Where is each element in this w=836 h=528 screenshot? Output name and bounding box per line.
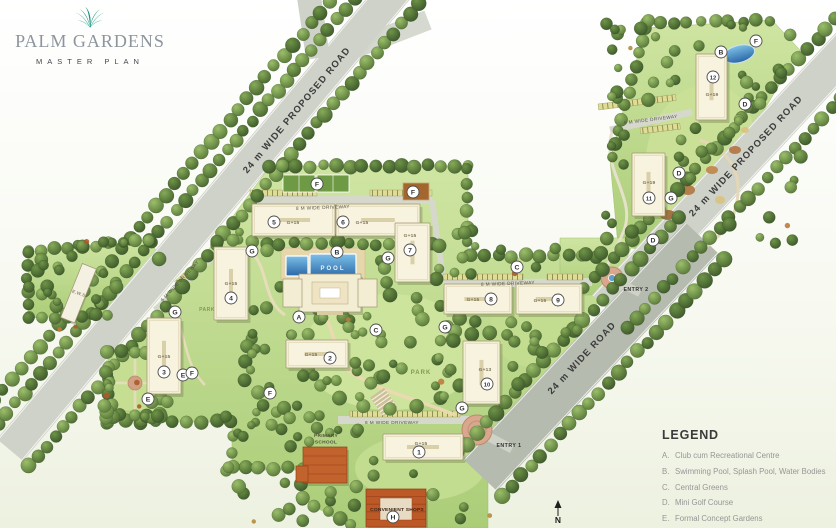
tree — [610, 25, 620, 35]
tree — [636, 34, 649, 47]
tree — [180, 416, 193, 429]
master-plan-page: G+151G+152G+153G+154G+155G+156G+157G+158… — [0, 0, 836, 528]
amenity-marker-d-text: D — [677, 170, 682, 177]
tree — [572, 325, 583, 336]
tree — [639, 303, 650, 314]
tree — [383, 288, 397, 302]
tree — [251, 386, 265, 400]
tree — [669, 45, 680, 56]
tree — [409, 469, 418, 478]
tree — [749, 13, 762, 26]
tree — [672, 210, 686, 224]
tree — [544, 439, 557, 452]
building-number-marker-text: 1 — [417, 449, 421, 456]
tree — [23, 247, 34, 258]
tree — [785, 181, 797, 193]
tree — [619, 159, 629, 169]
legend-item-label: Mini Golf Course — [675, 498, 733, 507]
building-10 — [463, 341, 503, 407]
building-floors-label: G+15 — [225, 281, 238, 287]
tree — [582, 398, 594, 410]
tree — [50, 431, 62, 443]
shrub — [346, 317, 351, 322]
tree — [166, 416, 178, 428]
tree — [300, 237, 313, 250]
building-11 — [632, 153, 668, 219]
tree — [187, 184, 199, 196]
logo-subtitle: MASTER PLAN — [10, 57, 170, 66]
tree — [23, 299, 34, 310]
tree — [435, 335, 446, 346]
tree — [519, 248, 533, 262]
amenity-marker-d-text: D — [651, 237, 656, 244]
tree — [238, 374, 252, 388]
tree — [723, 218, 737, 232]
splash-pool — [286, 256, 308, 276]
tree — [465, 327, 479, 341]
legend-item: B.Swimming Pool, Splash Pool, Water Bodi… — [662, 467, 836, 476]
tree — [320, 23, 334, 37]
amenity-marker-g-text: G — [385, 255, 390, 262]
tree — [396, 363, 408, 375]
tree — [765, 81, 777, 93]
building-number-marker-text: 9 — [556, 297, 560, 304]
tree — [211, 235, 224, 248]
tree — [36, 312, 47, 323]
tree — [410, 399, 424, 413]
tree — [25, 378, 37, 390]
tree — [140, 412, 149, 421]
mini-golf-patch — [741, 127, 749, 133]
tree — [508, 361, 519, 372]
tree — [297, 515, 309, 527]
tree — [33, 339, 48, 354]
tree — [59, 336, 73, 350]
tree — [41, 441, 53, 453]
club-wing — [283, 279, 302, 307]
tree — [435, 160, 447, 172]
tree — [496, 245, 506, 255]
legend-item-key: E. — [662, 514, 675, 523]
tree — [597, 294, 610, 307]
tree — [272, 238, 285, 251]
tree — [302, 328, 315, 341]
tree — [561, 327, 571, 337]
tree — [380, 276, 392, 288]
tree — [98, 237, 109, 248]
tree — [588, 304, 600, 316]
tree — [625, 74, 637, 86]
tree — [596, 263, 610, 277]
tree — [739, 24, 747, 32]
tree — [370, 240, 382, 252]
tree — [594, 246, 608, 260]
tree — [634, 22, 647, 35]
tree — [129, 234, 142, 247]
tree — [384, 403, 397, 416]
tree — [357, 239, 368, 250]
amenity-marker-e-text: E — [181, 372, 186, 379]
tree — [633, 47, 644, 58]
legend-item: A.Club cum Recreational Centre — [662, 451, 836, 460]
tree — [43, 288, 52, 297]
site-label: SCHOOL — [315, 440, 337, 446]
tree — [470, 426, 485, 441]
tree — [676, 259, 691, 274]
tree — [23, 281, 34, 292]
tree — [407, 160, 421, 174]
tree — [115, 344, 129, 358]
tree — [439, 392, 448, 401]
tree — [302, 127, 315, 140]
tree — [550, 243, 561, 254]
site-label: PARK — [411, 370, 432, 376]
tree — [383, 160, 396, 173]
mini-golf-patch — [715, 196, 725, 204]
shrub — [785, 223, 790, 228]
tree — [600, 232, 613, 245]
tree — [363, 312, 371, 320]
amenity-marker-b-text: B — [335, 249, 340, 256]
tree — [358, 328, 367, 337]
legend-item-key: B. — [662, 467, 675, 476]
tree — [89, 308, 102, 321]
tree — [601, 211, 610, 220]
amenity-marker-f-text: F — [754, 38, 758, 45]
tree — [368, 470, 380, 482]
shrub — [137, 404, 141, 408]
tree — [703, 231, 717, 245]
parking-strip — [547, 274, 583, 280]
tree — [151, 410, 164, 423]
tree — [105, 383, 114, 392]
tree — [513, 467, 528, 482]
tree — [563, 249, 576, 262]
tree — [304, 437, 314, 447]
tree — [343, 321, 355, 333]
building-12 — [696, 54, 730, 123]
tree — [304, 411, 316, 423]
legend-item: E.Formal Concept Gardens — [662, 514, 836, 523]
tree — [801, 42, 815, 56]
shrub — [487, 513, 492, 518]
tree — [533, 449, 547, 463]
tree — [624, 87, 636, 99]
tree — [754, 97, 766, 109]
tree — [690, 123, 701, 134]
amenity-marker-a-text: A — [297, 314, 302, 321]
tree — [415, 312, 429, 326]
tree — [110, 280, 124, 294]
tree — [203, 164, 218, 179]
tree — [227, 234, 240, 247]
tree — [465, 268, 476, 279]
tree — [531, 262, 541, 272]
legend-item-key: D. — [662, 498, 675, 507]
club-skylight — [320, 288, 340, 298]
tree — [483, 326, 497, 340]
logo: PALM GARDENS MASTER PLAN — [10, 4, 170, 66]
tree — [350, 480, 363, 493]
building-2 — [286, 340, 351, 371]
tree — [152, 252, 166, 266]
tree — [248, 329, 258, 339]
building-floors-label: G+15 — [467, 297, 480, 303]
tree — [297, 28, 310, 41]
shrub — [134, 380, 140, 386]
tree — [469, 315, 481, 327]
tree — [54, 265, 64, 275]
tree — [387, 28, 401, 42]
tree — [427, 488, 440, 501]
tree — [258, 70, 271, 83]
tree — [478, 249, 491, 262]
tree — [334, 426, 342, 434]
building-number-marker-text: 4 — [229, 295, 233, 302]
tree — [67, 251, 78, 262]
amenity-marker-c-text: C — [374, 327, 379, 334]
tree — [201, 249, 214, 262]
tree — [506, 480, 519, 493]
tree — [614, 64, 622, 72]
tree — [293, 432, 302, 441]
tree — [161, 216, 173, 228]
tree — [462, 192, 473, 203]
amenity-marker-g-text: G — [172, 309, 177, 316]
tree — [762, 172, 773, 183]
building-number-marker-text: 12 — [710, 75, 716, 81]
tree — [607, 152, 617, 162]
tree — [257, 399, 269, 411]
tree — [287, 330, 297, 340]
tree — [445, 364, 457, 376]
building-floors-label: G+15 — [305, 352, 318, 358]
tree — [709, 14, 722, 27]
shrub — [57, 327, 62, 332]
club-wing — [358, 279, 377, 307]
tree — [395, 158, 409, 172]
tree — [651, 32, 660, 41]
tree — [592, 388, 605, 401]
amenity-marker-h-text: H — [391, 514, 396, 521]
tree — [129, 257, 140, 268]
tree — [363, 360, 375, 372]
tree — [323, 506, 333, 516]
amenity-marker-g-text: G — [442, 324, 447, 331]
tree — [308, 500, 321, 513]
tree — [247, 349, 256, 358]
amenity-marker-c-text: C — [515, 264, 520, 271]
tree — [247, 421, 255, 429]
building-floors-label: G+19 — [706, 92, 719, 98]
tree — [39, 260, 49, 270]
tree — [633, 251, 649, 267]
tree — [339, 3, 353, 17]
tree — [238, 431, 249, 442]
tree — [15, 362, 28, 375]
entry-label: ENTRY 1 — [496, 443, 521, 449]
tree — [100, 345, 114, 359]
tree — [309, 371, 320, 382]
mini-golf-patch — [706, 166, 718, 174]
building-number-marker-text: 10 — [484, 382, 490, 388]
legend-item-label: Central Greens — [675, 483, 728, 492]
shrub — [73, 325, 77, 329]
tree — [49, 312, 61, 324]
tree — [787, 235, 798, 246]
tree — [607, 45, 617, 55]
logo-title: PALM GARDENS — [10, 31, 170, 52]
tree — [98, 399, 111, 412]
mini-golf-patch — [729, 146, 741, 154]
tree — [159, 188, 174, 203]
tree — [213, 154, 225, 166]
building-floors-label: G+13 — [479, 367, 492, 373]
tree — [292, 401, 302, 411]
site-label: PARK — [199, 307, 215, 313]
tree — [765, 16, 775, 26]
tree — [331, 375, 342, 386]
tree — [667, 274, 678, 285]
tree — [799, 132, 812, 145]
tree — [383, 238, 395, 250]
tree — [450, 268, 459, 277]
tree — [460, 204, 473, 217]
tree — [457, 252, 468, 263]
tree — [694, 40, 705, 51]
tree — [530, 337, 540, 347]
tree — [763, 211, 775, 223]
tree — [727, 20, 736, 29]
tree — [213, 124, 228, 139]
tree — [536, 346, 549, 359]
tree — [674, 152, 684, 162]
tree — [814, 112, 829, 127]
tree — [776, 67, 788, 79]
tree — [602, 377, 615, 390]
tree — [266, 419, 278, 431]
tree — [546, 343, 561, 358]
tree — [740, 76, 753, 89]
tree — [471, 242, 479, 250]
tree — [521, 321, 532, 332]
tree — [357, 399, 371, 413]
tree — [422, 159, 434, 171]
building-number-marker-text: 3 — [162, 369, 166, 376]
tree — [194, 416, 208, 430]
tree — [251, 189, 264, 202]
amenity-marker-f-text: F — [315, 181, 319, 188]
tree — [506, 317, 518, 329]
tree — [129, 410, 140, 421]
tree — [779, 151, 792, 164]
tree — [654, 16, 667, 29]
tree — [282, 461, 295, 474]
tree — [304, 161, 317, 174]
tree — [143, 235, 154, 246]
tree — [268, 59, 280, 71]
tree — [223, 462, 234, 473]
tree — [237, 125, 248, 136]
tree — [280, 478, 290, 488]
tree — [288, 159, 302, 173]
tree — [642, 337, 654, 349]
tree — [658, 315, 673, 330]
driveway-label: 8 M WIDE DRIVEWAY — [365, 420, 419, 425]
tree — [316, 238, 328, 250]
tree — [676, 135, 686, 145]
tree — [226, 448, 237, 459]
tree — [459, 502, 468, 511]
shrub — [438, 379, 444, 385]
compass-north-label: N — [555, 515, 561, 525]
tree — [411, 292, 422, 303]
tree — [355, 159, 368, 172]
amenity-marker-g-text: G — [249, 248, 254, 255]
tree — [509, 336, 521, 348]
tree — [680, 17, 692, 29]
tree — [262, 160, 276, 174]
legend-title: LEGEND — [662, 428, 836, 442]
club-steps — [317, 311, 343, 315]
tree — [404, 336, 416, 348]
amenity-marker-e-text: E — [146, 396, 151, 403]
legend-item: D.Mini Golf Course — [662, 498, 836, 507]
tree — [329, 158, 343, 172]
legend-item: C.Central Greens — [662, 483, 836, 492]
tree — [81, 391, 95, 405]
tree — [369, 456, 378, 465]
tree — [325, 486, 337, 498]
tree — [648, 77, 659, 88]
tree — [461, 178, 473, 190]
tree — [345, 519, 356, 528]
tree — [641, 93, 655, 107]
tree — [43, 330, 55, 342]
tree — [685, 173, 696, 184]
legend-items: A.Club cum Recreational CentreB.Swimming… — [662, 451, 836, 528]
tree — [161, 396, 173, 408]
tree — [266, 462, 280, 476]
tree — [246, 366, 255, 375]
tree — [348, 499, 361, 512]
legend: LEGEND A.Club cum Recreational CentreB.S… — [662, 428, 836, 528]
tree — [285, 38, 300, 53]
tree — [311, 422, 323, 434]
tree — [260, 178, 272, 190]
building-floors-label: G+15 — [158, 354, 171, 360]
tree — [177, 167, 190, 180]
tree — [48, 241, 62, 255]
tree — [696, 16, 706, 26]
building-number-marker-text: 11 — [646, 196, 653, 202]
amenity-marker-d-text: D — [743, 101, 748, 108]
building-9 — [516, 284, 585, 317]
tree — [607, 219, 617, 229]
tree — [332, 391, 347, 406]
site-label: POOL — [320, 266, 345, 272]
tree — [352, 424, 364, 436]
building-floors-label: G+15 — [404, 233, 417, 239]
tree — [9, 397, 20, 408]
tree — [630, 60, 643, 73]
tree — [239, 460, 253, 474]
legend-item-label: Club cum Recreational Centre — [675, 451, 779, 460]
building-number-marker-text: 5 — [272, 219, 276, 226]
tree — [360, 55, 375, 70]
amenity-marker-f-text: F — [190, 370, 194, 377]
tree — [350, 357, 362, 369]
